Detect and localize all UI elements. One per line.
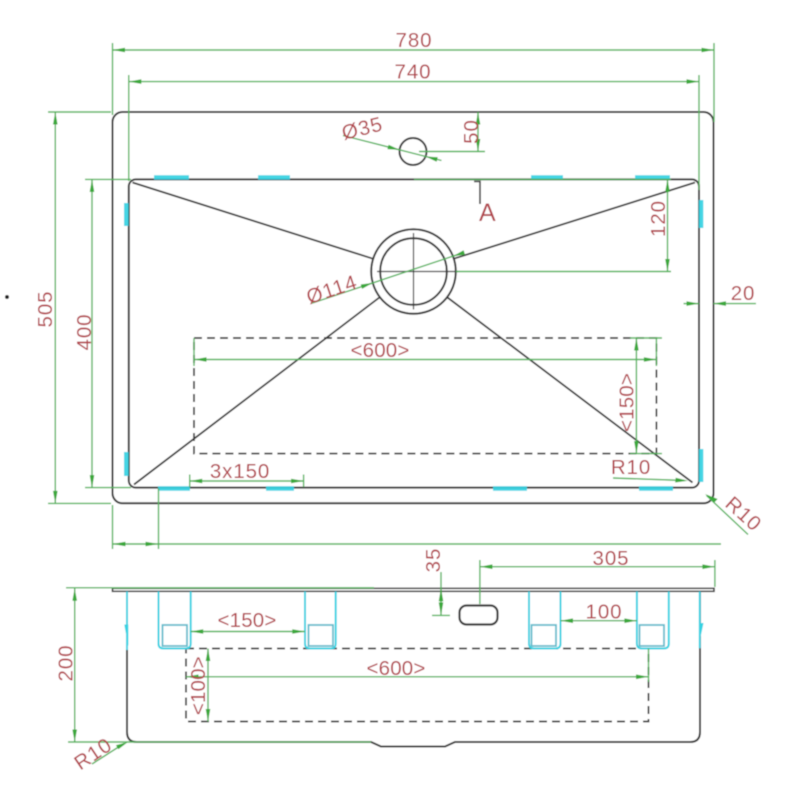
svg-text:35: 35	[422, 548, 445, 573]
svg-text:<100>: <100>	[187, 656, 210, 715]
svg-text:A: A	[479, 199, 497, 227]
svg-text:<600>: <600>	[367, 657, 426, 680]
svg-text:740: 740	[395, 61, 432, 84]
svg-text:305: 305	[593, 547, 630, 570]
svg-text:20: 20	[731, 282, 756, 305]
svg-text:<600>: <600>	[351, 339, 410, 362]
svg-text:R10: R10	[611, 456, 651, 479]
svg-text:<150>: <150>	[616, 373, 639, 432]
svg-text:100: 100	[586, 601, 623, 624]
svg-text:400: 400	[73, 314, 96, 351]
svg-text:505: 505	[34, 291, 57, 328]
svg-text:<150>: <150>	[218, 609, 277, 632]
svg-text:120: 120	[647, 200, 670, 237]
svg-text:780: 780	[396, 29, 433, 52]
svg-text:50: 50	[460, 119, 483, 144]
svg-text:3x150: 3x150	[210, 460, 270, 483]
svg-text:200: 200	[55, 645, 78, 682]
